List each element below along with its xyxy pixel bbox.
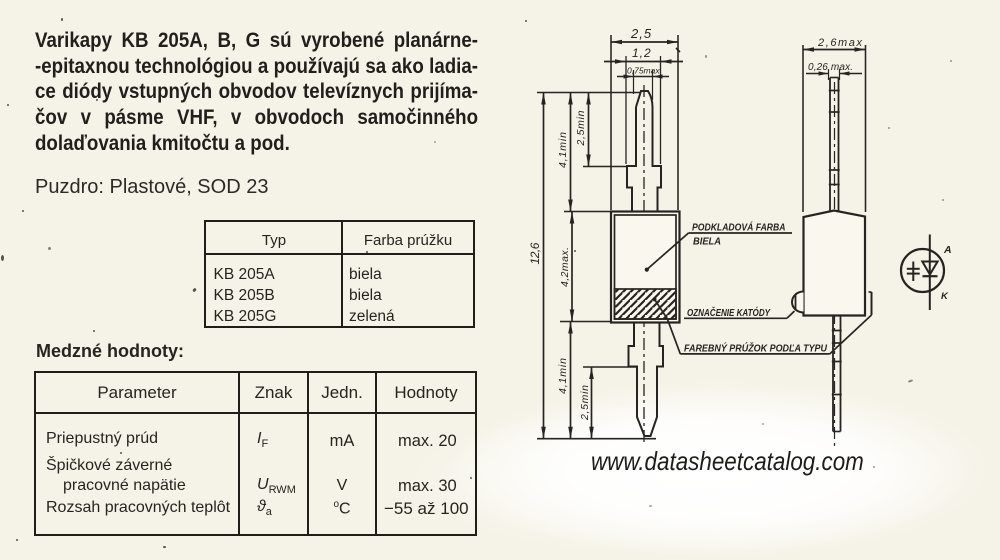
- svg-text:0,26 max.: 0,26 max.: [808, 62, 853, 73]
- svg-text:FAREBNÝ PRÚŽOK PODĽA TYPU: FAREBNÝ PRÚŽOK PODĽA TYPU: [684, 342, 828, 355]
- svg-text:2,5: 2,5: [630, 26, 652, 41]
- svg-text:12,6: 12,6: [528, 242, 542, 264]
- svg-text:4,1min: 4,1min: [557, 132, 569, 168]
- svg-text:4,2max.: 4,2max.: [559, 247, 571, 287]
- svg-text:K: K: [941, 291, 949, 302]
- svg-text:OZNAČENIE KATÓDY: OZNAČENIE KATÓDY: [687, 306, 771, 319]
- svg-text:PODKLADOVÁ FARBA: PODKLADOVÁ FARBA: [692, 221, 786, 234]
- svg-text:BIELA: BIELA: [693, 237, 721, 248]
- svg-text:4,1min: 4,1min: [557, 358, 569, 394]
- svg-text:2,5min: 2,5min: [575, 110, 587, 146]
- svg-text:2,6max: 2,6max: [817, 37, 863, 49]
- svg-text:2,5min: 2,5min: [579, 385, 591, 421]
- svg-text:0,75max: 0,75max: [627, 66, 660, 76]
- svg-text:A: A: [943, 244, 952, 256]
- svg-text:1,2: 1,2: [632, 46, 652, 60]
